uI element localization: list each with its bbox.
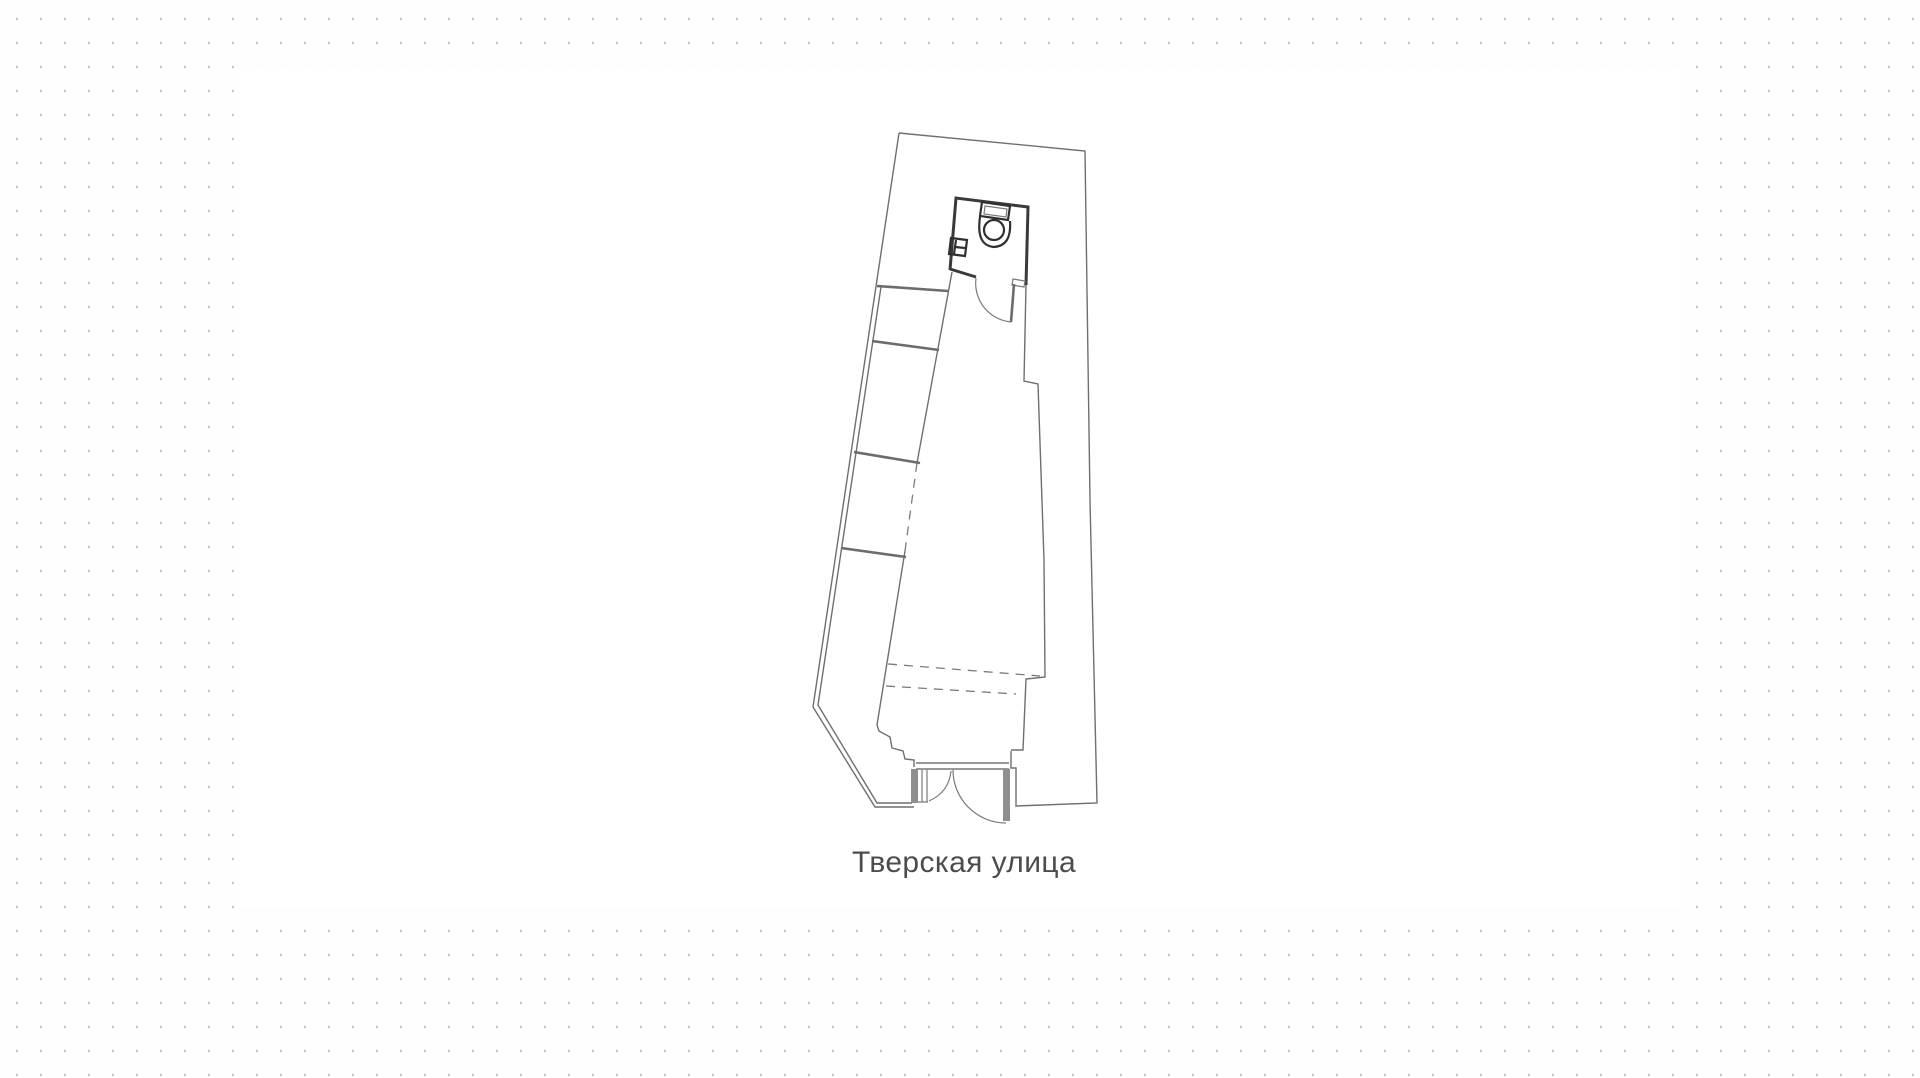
partition-line-3 [854, 452, 920, 463]
entrance-left-door-arc [929, 771, 951, 801]
left-room-partitions [841, 286, 948, 557]
partition-line-4 [841, 548, 906, 557]
outline-right [899, 133, 1097, 806]
entrance-door-arc-icon [953, 770, 1006, 823]
partition-line-2 [872, 341, 939, 350]
partition-line-1 [877, 286, 948, 291]
door-swing-arc-icon [976, 278, 1011, 322]
hall-boundary-lower-steps [877, 551, 914, 767]
right-interior-wall [1011, 285, 1045, 750]
wc-interior-door [976, 278, 1014, 322]
floor-plan-drawing [0, 0, 1920, 1078]
interior-door-leaf [1011, 284, 1014, 322]
outline-left-inner [818, 287, 912, 803]
dashed-step-line-1 [888, 664, 1040, 676]
toilet-icon [979, 202, 1010, 247]
wc-room [949, 198, 1028, 322]
toilet-bowl-circle [984, 220, 1004, 240]
floor-step-dashed-lines [886, 664, 1040, 694]
street-entrance [911, 763, 1010, 823]
dashed-step-line-2 [886, 686, 1016, 694]
sink-tap [955, 247, 965, 248]
hall-boundary-dashed-opening [905, 463, 917, 551]
wc-room-bottom-wall [950, 269, 976, 277]
toilet-tank-inner [984, 206, 1007, 217]
entrance-right-door-leaf [1003, 769, 1010, 821]
street-label: Тверская улица [764, 846, 1164, 880]
right-wall-path [1011, 285, 1045, 750]
entrance-left-jamb [911, 769, 918, 803]
building-outline [813, 133, 1097, 807]
outline-left [813, 133, 914, 807]
hall-boundary-upper [917, 272, 952, 463]
entrance-left-frame [918, 770, 928, 802]
